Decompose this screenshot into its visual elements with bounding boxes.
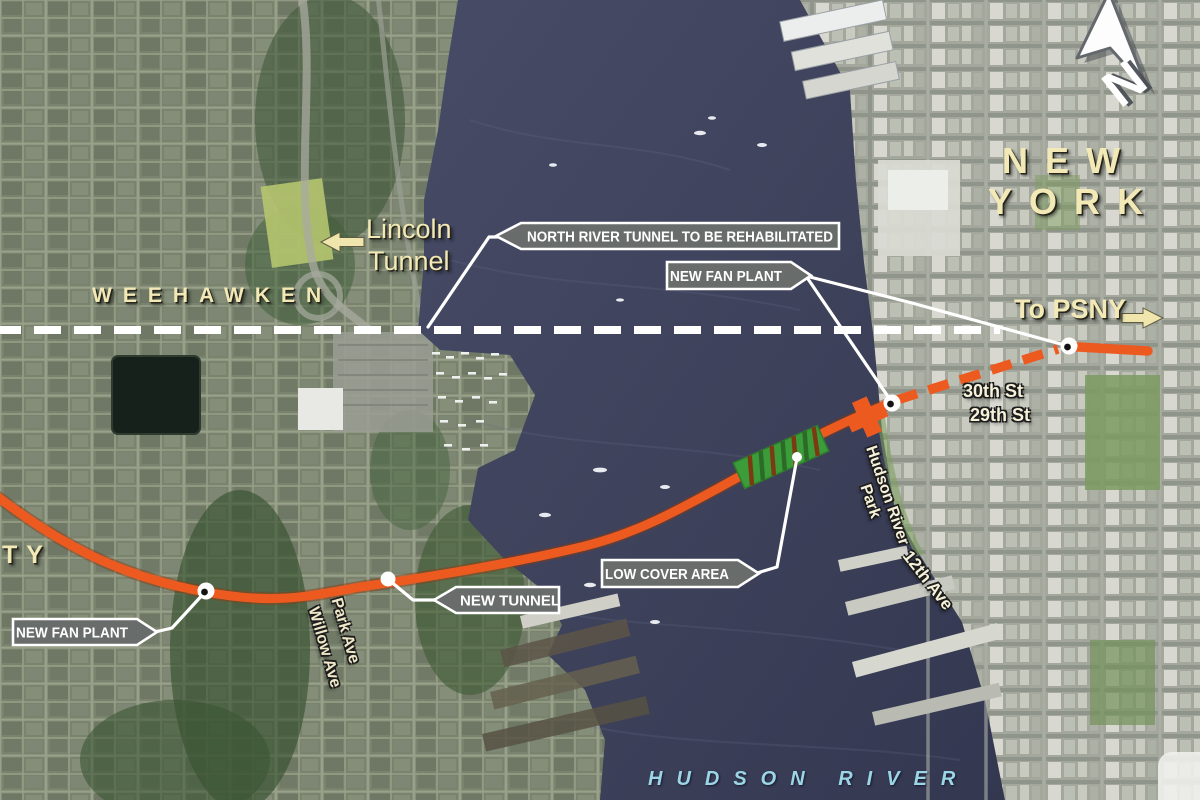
large-building — [298, 388, 343, 430]
label-30th-st: 30th St — [963, 381, 1023, 402]
label-city-partial: TY — [2, 541, 52, 570]
fan-plant-marker-nj — [198, 583, 215, 600]
callout-new-fan-plant-nj-text: NEW FAN PLANT — [16, 625, 128, 642]
callout-north-river-tunnel: NORTH RIVER TUNNEL TO BE REHABILITATED — [496, 223, 839, 249]
aerial-map: NORTH RIVER TUNNEL TO BE REHABILITATED N… — [0, 0, 1200, 800]
label-new-york-line2: YORK — [988, 181, 1160, 223]
label-lincoln-tunnel-line1: Lincoln — [366, 214, 452, 245]
reservoir — [112, 356, 200, 434]
callout-new-tunnel: NEW TUNNEL — [434, 587, 560, 613]
callout-new-fan-plant-ny-text: NEW FAN PLANT — [670, 268, 782, 285]
label-weehawken: WEEHAWKEN — [92, 284, 332, 308]
label-lincoln-tunnel-line2: Tunnel — [368, 246, 450, 277]
lincoln-tunnel-portal-park — [261, 178, 334, 268]
label-29th-st: 29th St — [970, 405, 1030, 426]
psny-tunnel-marker — [1061, 338, 1078, 355]
callout-north-river-tunnel-text: NORTH RIVER TUNNEL TO BE REHABILITATED — [527, 230, 833, 246]
callout-low-cover-area-text: LOW COVER AREA — [605, 566, 729, 583]
callout-new-fan-plant-ny: NEW FAN PLANT — [667, 262, 811, 289]
callout-low-cover-area: LOW COVER AREA — [602, 560, 759, 587]
callout-new-tunnel-text: NEW TUNNEL — [460, 593, 560, 610]
railyard — [333, 332, 433, 432]
cropped-label-corner — [1158, 752, 1200, 800]
ny-park — [1085, 375, 1160, 490]
new-tunnel-marker — [381, 572, 396, 587]
label-to-psny: To PSNY — [1014, 294, 1126, 325]
label-hudson-river: HUDSON RIVER — [648, 768, 969, 791]
label-new-york-line1: NEW — [1002, 140, 1137, 182]
low-cover-marker-dot — [792, 452, 802, 462]
fan-plant-marker-ny — [884, 395, 901, 412]
callout-new-fan-plant-nj: NEW FAN PLANT — [13, 619, 157, 645]
